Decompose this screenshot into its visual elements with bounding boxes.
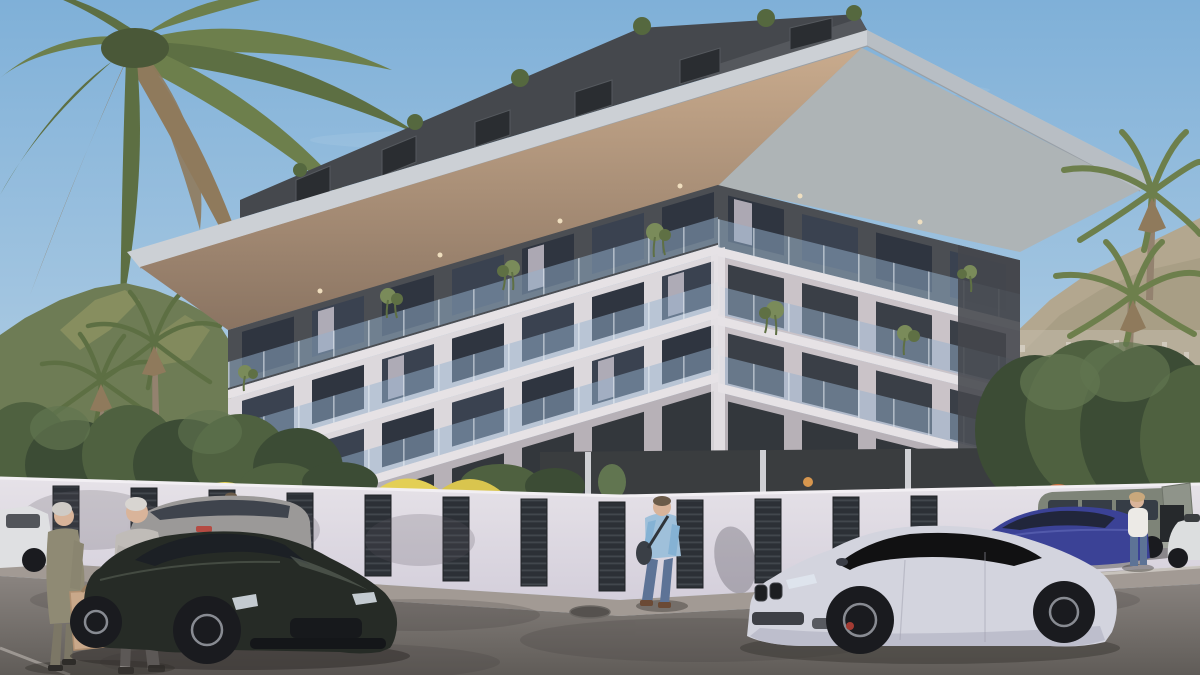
porsche-front-wheel	[173, 596, 241, 664]
man-shoe	[640, 600, 653, 606]
scene-canvas	[0, 0, 1200, 675]
white-car-partial	[0, 506, 52, 572]
porsche-grille	[290, 618, 362, 638]
bmw-front-wheel	[826, 586, 894, 654]
suv-taillight	[196, 526, 212, 532]
woman-shoe	[48, 665, 63, 671]
woman-shoe	[62, 659, 76, 665]
woman-jeans-leg	[1140, 535, 1147, 565]
white-car-window	[6, 514, 40, 528]
palm-core	[101, 28, 169, 68]
storefront-mullion	[760, 450, 766, 496]
woman-top	[1128, 508, 1148, 537]
porsche-rear-wheel	[70, 596, 122, 648]
bmw-kidney-grille	[770, 583, 782, 599]
woman-hair	[1129, 492, 1145, 502]
bmw-rear-wheel	[1033, 581, 1095, 643]
architectural-render	[0, 0, 1200, 675]
woman-jeans-leg	[1130, 535, 1138, 566]
man-shoe	[118, 667, 134, 674]
man-shoe	[658, 602, 671, 608]
white-car-wheel	[22, 548, 46, 572]
storefront-mullion	[585, 452, 591, 498]
man-hair	[125, 497, 147, 511]
manhole-cover	[570, 606, 610, 618]
scooter-seat	[1184, 514, 1200, 522]
scooter-wheel	[1168, 548, 1188, 568]
wall-lamp-glow	[803, 477, 813, 487]
storefront-mullion	[905, 449, 911, 495]
bmw-mirror	[836, 558, 848, 566]
woman-hair	[52, 502, 72, 516]
bmw-brake-caliper	[846, 622, 854, 630]
man-hair	[653, 496, 671, 506]
bmw-front-intake	[752, 612, 804, 625]
bmw-kidney-grille	[755, 585, 767, 601]
corner-pier	[711, 247, 725, 482]
porsche-lower-intake	[250, 638, 386, 649]
